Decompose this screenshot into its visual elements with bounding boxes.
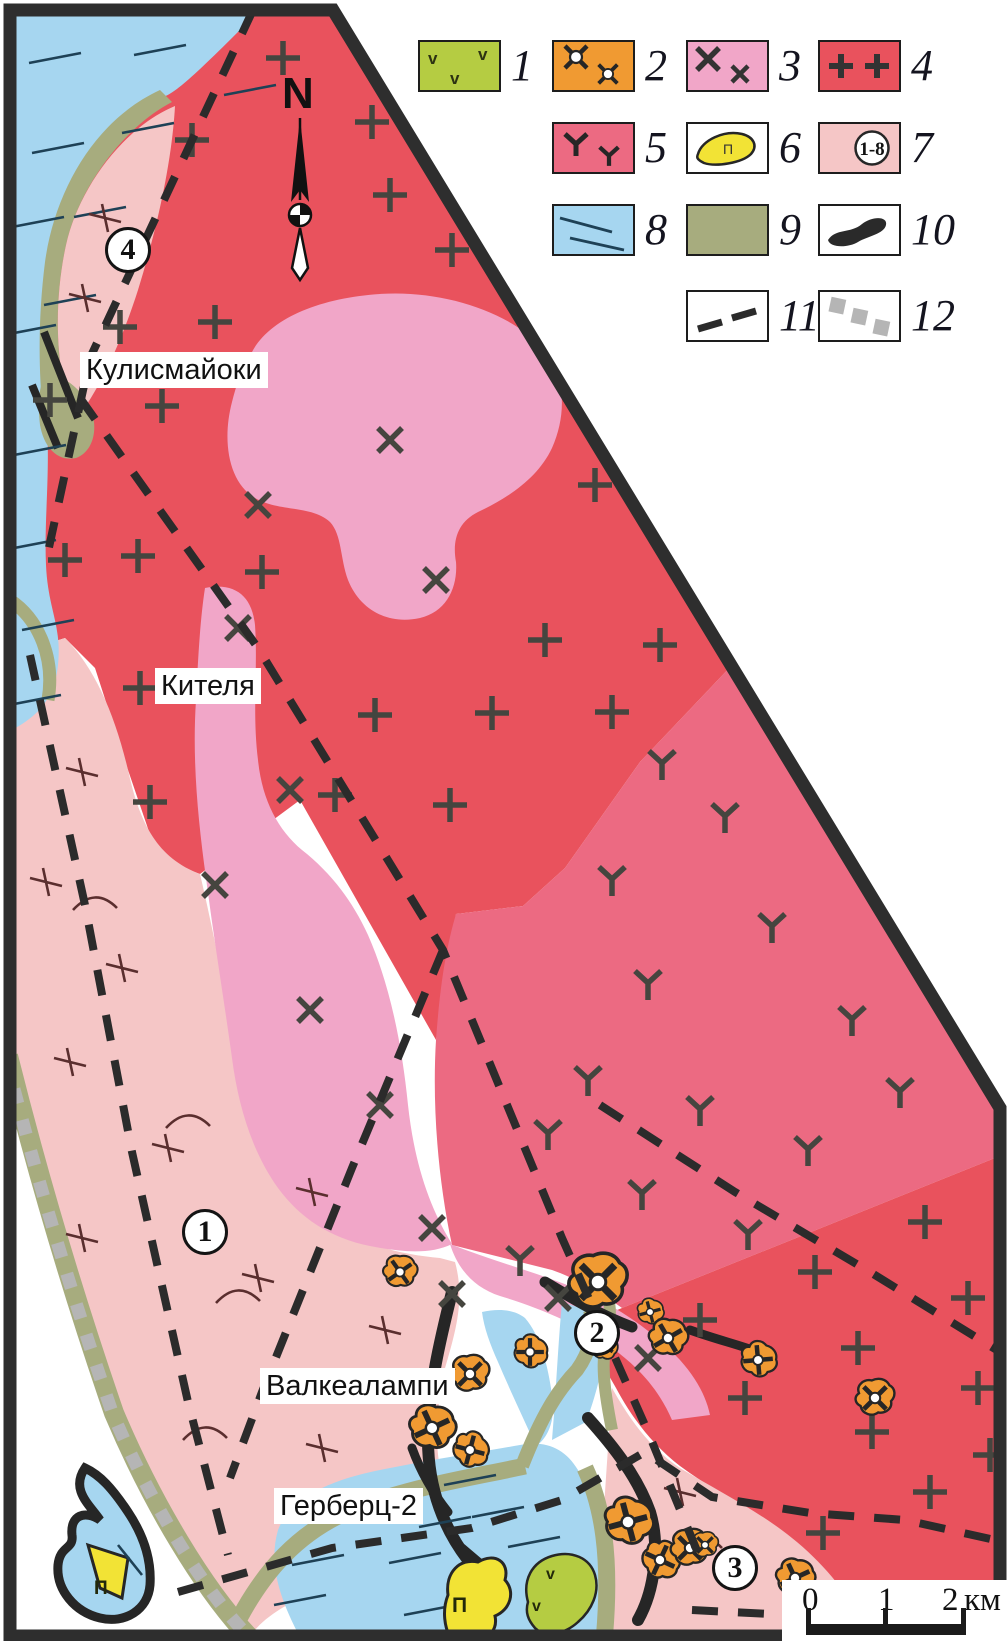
site-marker-1-label: 1 — [198, 1215, 213, 1249]
legend-item-11: 11 — [686, 290, 820, 342]
site-marker-2: 2 — [574, 1310, 620, 1356]
legend-number-5: 5 — [645, 124, 667, 172]
site-marker-2-label: 2 — [590, 1316, 605, 1350]
legend-item-3: 3 — [686, 40, 801, 92]
legend-swatch-olive-icon — [686, 204, 769, 256]
scale-tick-0 — [806, 1608, 811, 1626]
legend-swatch-black-ribbon-icon — [818, 204, 901, 256]
legend-swatch-v-pattern-icon: v v v — [418, 40, 501, 92]
site-marker-3-label: 3 — [728, 1551, 743, 1585]
legend-item-4: 4 — [818, 40, 933, 92]
legend-number-8: 8 — [645, 206, 667, 254]
scale-bar: 0 1 2 км — [782, 1580, 1008, 1641]
svg-text:v: v — [428, 49, 438, 68]
scale-tick-1 — [883, 1608, 888, 1626]
legend-number-7: 7 — [911, 124, 933, 172]
map-glyph-p-center: П — [452, 1594, 467, 1618]
legend-item-10: 10 — [818, 204, 955, 256]
map-glyph-p-lake: П — [94, 1578, 108, 1600]
legend-item-8: 8 — [552, 204, 667, 256]
place-label-kitelya: Кителя — [155, 668, 261, 704]
legend-number-4: 4 — [911, 42, 933, 90]
scale-unit-label: км — [964, 1582, 1001, 1619]
legend-number-2: 2 — [645, 42, 667, 90]
place-label-valkealampi: Валкеалампи — [260, 1368, 455, 1404]
geological-map-figure: N Кулисмайоки Кителя Валкеалампи Герберц… — [0, 0, 1008, 1641]
legend-swatch-gray-dotted-icon — [818, 290, 901, 342]
scale-tick-2 — [961, 1608, 966, 1626]
legend-item-12: 12 — [818, 290, 955, 342]
legend: v v v 1 2 3 4 — [0, 0, 1008, 380]
place-label-gerberts: Герберц-2 — [274, 1488, 423, 1524]
map-glyph-v2: v — [532, 1598, 541, 1616]
legend-number-1: 1 — [511, 42, 533, 90]
legend-swatch-pegmatite-icon: П — [686, 122, 769, 174]
legend-item-7: 1-8 7 — [818, 122, 933, 174]
svg-text:1-8: 1-8 — [859, 139, 884, 160]
legend-swatch-ore-flower-icon — [552, 40, 635, 92]
legend-swatch-line-pattern-icon — [552, 204, 635, 256]
svg-text:v: v — [478, 45, 488, 64]
map-glyph-v1: v — [546, 1566, 555, 1584]
site-marker-3: 3 — [712, 1545, 758, 1591]
legend-number-9: 9 — [779, 206, 801, 254]
svg-text:П: П — [723, 141, 733, 157]
scale-tick-2-label: 2 — [942, 1582, 959, 1619]
legend-number-12: 12 — [911, 292, 955, 340]
legend-item-1: v v v 1 — [418, 40, 533, 92]
legend-number-6: 6 — [779, 124, 801, 172]
legend-swatch-dashed-line-icon — [686, 290, 769, 342]
site-marker-1: 1 — [182, 1209, 228, 1255]
legend-item-6: П 6 — [686, 122, 801, 174]
legend-item-5: 5 — [552, 122, 667, 174]
legend-number-3: 3 — [779, 42, 801, 90]
legend-swatch-plus-pattern-icon — [818, 40, 901, 92]
legend-number-10: 10 — [911, 206, 955, 254]
legend-swatch-y-pattern-icon — [552, 122, 635, 174]
legend-swatch-x-pattern-icon — [686, 40, 769, 92]
legend-item-2: 2 — [552, 40, 667, 92]
legend-swatch-numbered-sites-icon: 1-8 — [818, 122, 901, 174]
legend-item-9: 9 — [686, 204, 801, 256]
svg-text:v: v — [450, 69, 460, 88]
legend-number-11: 11 — [779, 292, 820, 340]
